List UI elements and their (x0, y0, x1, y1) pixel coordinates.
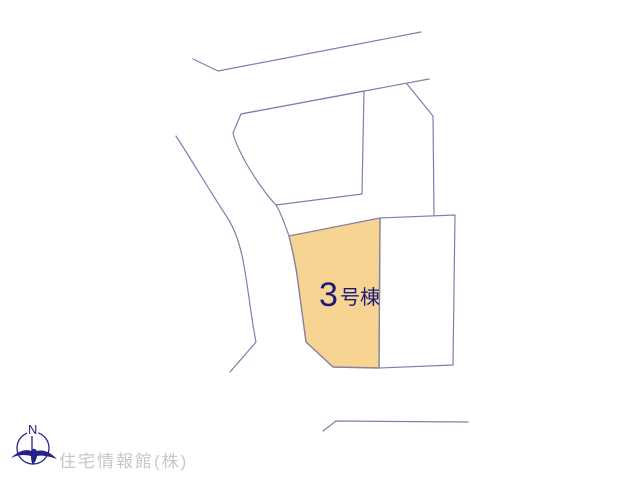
plot-map-drawing: 3 号棟 N (0, 0, 640, 480)
road-edge-top-upper (193, 32, 421, 71)
parcel-outline-upper (233, 91, 364, 205)
parcel-outline-right (379, 215, 455, 368)
parcel-3-label-number: 3 (319, 276, 338, 314)
parcel-3-label-suffix: 号棟 (340, 286, 380, 309)
road-edge-bottom (323, 421, 468, 431)
road-edge-left-outer (176, 136, 256, 372)
plot-map-canvas: 3 号棟 N 住宅情報館(株) (0, 0, 640, 480)
compass-icon: N (11, 422, 57, 465)
boundary-branch-right (407, 84, 434, 215)
north-label: N (28, 422, 37, 437)
company-credit: 住宅情報館(株) (59, 447, 188, 472)
road-edge-left-inner (276, 205, 289, 236)
